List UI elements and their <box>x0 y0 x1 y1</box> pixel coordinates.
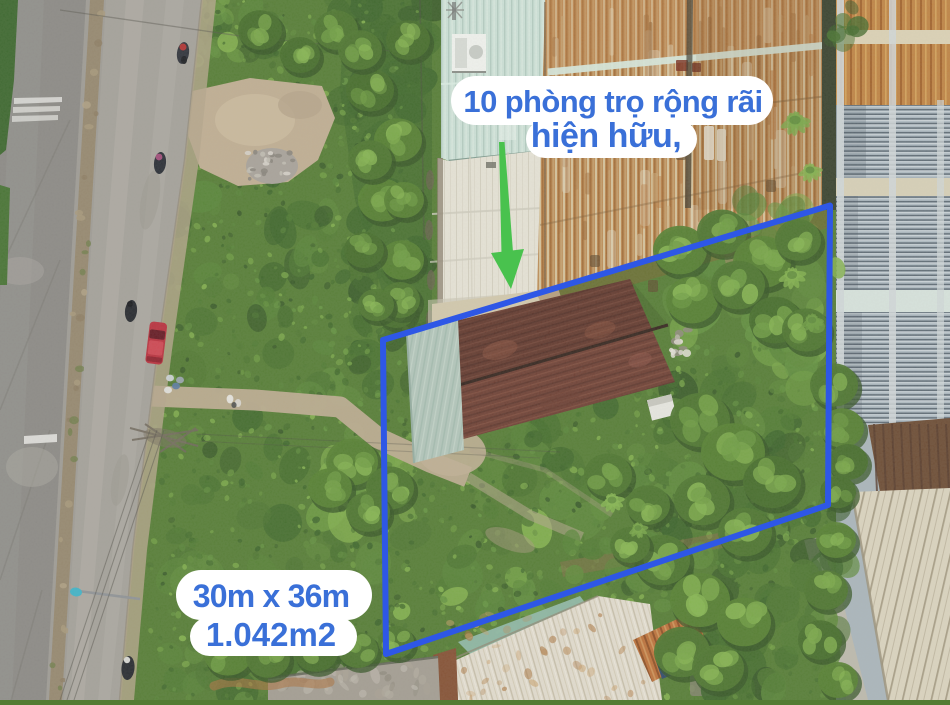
svg-text:10 phòng trọ rộng rãi: 10 phòng trọ rộng rãi <box>463 84 762 119</box>
svg-text:hiện hữu,: hiện hữu, <box>531 117 681 155</box>
svg-text:1.042m2: 1.042m2 <box>206 616 336 653</box>
svg-text:30m x 36m: 30m x 36m <box>193 578 349 614</box>
